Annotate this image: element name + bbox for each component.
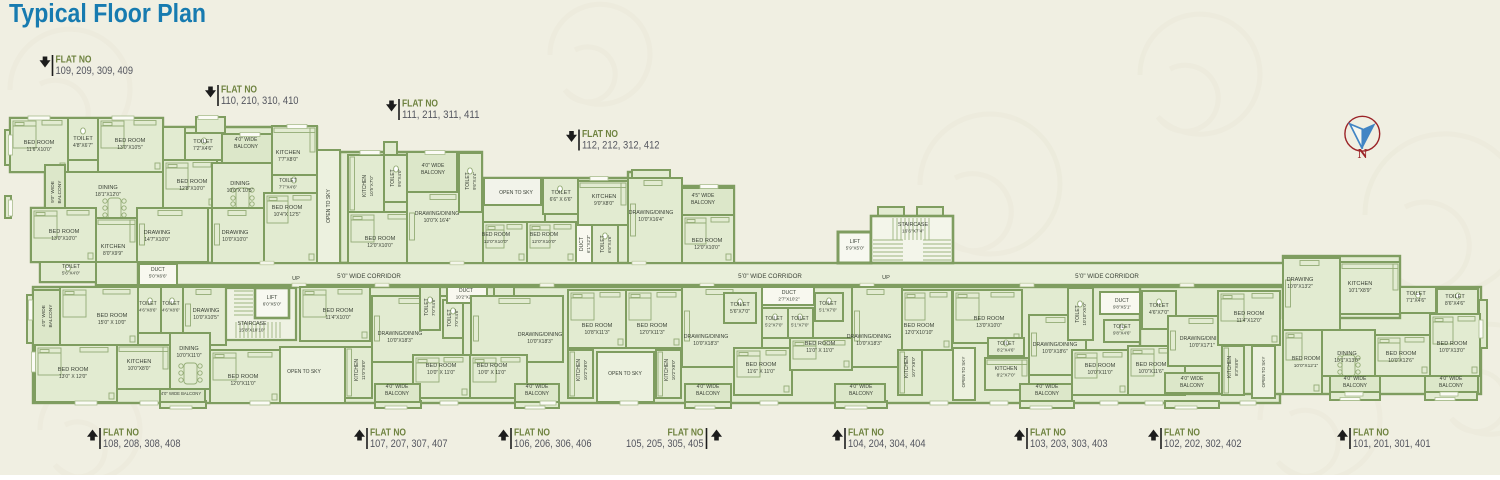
svg-text:107, 207, 307, 407: 107, 207, 307, 407 [370, 438, 448, 450]
svg-text:9'8"X5'1": 9'8"X5'1" [1113, 305, 1131, 310]
svg-text:DRAWING/DINING: DRAWING/DINING [847, 334, 891, 340]
svg-text:TOILET: TOILET [390, 169, 396, 186]
svg-text:4'0" WIDE: 4'0" WIDE [1181, 376, 1204, 382]
svg-text:KITCHEN: KITCHEN [354, 359, 360, 381]
svg-text:TOILET: TOILET [139, 301, 156, 307]
svg-text:4'6"X8'6": 4'6"X8'6" [139, 308, 157, 313]
svg-text:BED ROOM: BED ROOM [1234, 311, 1265, 317]
svg-text:DUCT: DUCT [1115, 298, 1129, 304]
svg-text:BED ROOM: BED ROOM [692, 238, 723, 244]
svg-text:10'0"X18'6": 10'0"X18'6" [1042, 349, 1068, 355]
svg-text:11'4"X12'0": 11'4"X12'0" [1236, 318, 1261, 324]
svg-text:BALCONY: BALCONY [525, 391, 550, 397]
svg-text:10'1"X8'9": 10'1"X8'9" [1349, 288, 1372, 294]
svg-text:DRAWING: DRAWING [222, 230, 249, 236]
svg-text:5’0" WIDE CORRIDOR: 5’0" WIDE CORRIDOR [738, 273, 802, 280]
svg-text:10'0"X18'3": 10'0"X18'3" [856, 341, 882, 347]
svg-text:BED ROOM: BED ROOM [24, 140, 55, 146]
svg-text:BED ROOM: BED ROOM [426, 363, 457, 369]
svg-text:BED ROOM: BED ROOM [49, 229, 80, 235]
svg-text:OPEN TO SKY: OPEN TO SKY [326, 188, 332, 222]
svg-text:BALCONY: BALCONY [421, 170, 446, 176]
svg-text:BED ROOM: BED ROOM [1085, 363, 1116, 369]
svg-text:BED ROOM: BED ROOM [323, 308, 354, 314]
svg-text:9'8"X4'6": 9'8"X4'6" [1113, 331, 1131, 336]
svg-text:7'2"X4'6": 7'2"X4'6" [193, 146, 213, 152]
svg-text:13'0"X10'5": 13'0"X10'5" [117, 145, 143, 151]
svg-text:BED ROOM: BED ROOM [1437, 341, 1468, 347]
svg-text:16’6"X7’4": 16’6"X7’4" [902, 229, 924, 235]
svg-text:TOILET: TOILET [73, 136, 93, 142]
svg-text:10'0"X12'1": 10'0"X12'1" [1294, 363, 1319, 369]
svg-text:TOILET: TOILET [1113, 324, 1130, 330]
svg-text:KITCHEN: KITCHEN [1227, 356, 1233, 378]
svg-text:106, 206, 306, 406: 106, 206, 306, 406 [514, 438, 592, 450]
svg-text:4'5" WIDE: 4'5" WIDE [692, 193, 715, 199]
svg-text:TOILET: TOILET [1406, 291, 1426, 297]
svg-text:10'0"X11'0": 10'0"X11'0" [1087, 370, 1112, 376]
svg-text:BALCONY: BALCONY [57, 180, 63, 204]
svg-text:STAIRCASE: STAIRCASE [237, 321, 267, 327]
svg-text:10'5"X7'0": 10'5"X7'0" [369, 175, 374, 196]
svg-text:4'8"X6'7": 4'8"X6'7" [73, 143, 93, 149]
svg-text:KITCHEN: KITCHEN [995, 366, 1018, 372]
svg-text:TOILET: TOILET [62, 264, 81, 270]
svg-text:4'6"X7'0": 4'6"X7'0" [1149, 310, 1169, 316]
svg-text:10'0"X8'0": 10'0"X8'0" [128, 366, 151, 372]
svg-text:7'7"X8'0": 7'7"X8'0" [278, 157, 298, 163]
svg-text:KITCHEN: KITCHEN [362, 175, 368, 197]
svg-text:4'0" WIDE: 4'0" WIDE [235, 137, 258, 143]
svg-text:BED ROOM: BED ROOM [115, 138, 146, 144]
svg-text:10'0"X18'3": 10'0"X18'3" [693, 341, 719, 347]
svg-text:TOILET: TOILET [1445, 294, 1465, 300]
svg-text:OPEN TO SKY: OPEN TO SKY [1261, 357, 1266, 388]
svg-text:BED ROOM: BED ROOM [974, 316, 1005, 322]
svg-text:105, 205, 305, 405: 105, 205, 305, 405 [626, 438, 704, 450]
svg-text:BED ROOM: BED ROOM [1292, 356, 1320, 362]
svg-text:6'1"X2'3": 6'1"X2'3" [586, 235, 591, 253]
svg-text:10'0"X10'5": 10'0"X10'5" [193, 315, 219, 321]
svg-text:10'0"X13'2": 10'0"X13'2" [1287, 284, 1313, 290]
svg-text:13'0" X 12'0": 13'0" X 12'0" [59, 374, 87, 380]
svg-text:5’0" WIDE CORRIDOR: 5’0" WIDE CORRIDOR [337, 273, 401, 280]
svg-text:TOILET: TOILET [765, 316, 782, 322]
svg-text:11'4"X10'0": 11'4"X10'0" [325, 315, 350, 321]
svg-text:KITCHEN: KITCHEN [127, 359, 152, 365]
svg-text:TOILET: TOILET [424, 298, 430, 315]
svg-text:LIFT: LIFT [267, 295, 278, 301]
svg-text:7'0"X4'6": 7'0"X4'6" [454, 309, 459, 327]
svg-text:102, 202, 302, 402: 102, 202, 302, 402 [1164, 438, 1242, 450]
svg-text:BALCONY: BALCONY [1343, 383, 1368, 389]
svg-text:101, 201, 301, 401: 101, 201, 301, 401 [1353, 438, 1431, 450]
svg-text:4'0" WIDE: 4'0" WIDE [1344, 376, 1367, 382]
svg-text:9'6"X4'4": 9'6"X4'4" [472, 172, 477, 190]
svg-text:OPEN TO SKY: OPEN TO SKY [608, 371, 642, 377]
svg-text:DRAWING: DRAWING [193, 308, 220, 314]
svg-text:7'0"X4'6": 7'0"X4'6" [431, 298, 436, 316]
svg-text:TOILET: TOILET [819, 301, 836, 307]
svg-text:BED ROOM: BED ROOM [904, 323, 935, 329]
svg-text:LIFT: LIFT [850, 239, 861, 245]
svg-text:BALCONY: BALCONY [1180, 383, 1205, 389]
svg-text:5'0"X6'6": 5'0"X6'6" [149, 274, 168, 279]
svg-text:DRAWING: DRAWING [1287, 277, 1314, 283]
svg-text:BED ROOM: BED ROOM [637, 323, 668, 329]
svg-text:10'0"X12'6": 10'0"X12'6" [1388, 358, 1414, 364]
svg-text:BALCONY: BALCONY [385, 391, 410, 397]
svg-text:110, 210, 310, 410: 110, 210, 310, 410 [221, 95, 299, 107]
svg-text:DINING: DINING [98, 185, 118, 191]
svg-text:9'0"X8'0": 9'0"X8'0" [594, 201, 614, 207]
svg-text:5'6"X7'0": 5'6"X7'0" [730, 309, 750, 315]
svg-text:OPEN TO SKY: OPEN TO SKY [499, 190, 533, 196]
svg-text:DRAWING/DINING: DRAWING/DINING [415, 211, 459, 217]
svg-text:DRAWING/DINING: DRAWING/DINING [1033, 342, 1077, 348]
svg-text:5'6"X4'0": 5'6"X4'0" [62, 271, 81, 276]
svg-text:5'1"X7'0": 5'1"X7'0" [819, 308, 837, 313]
svg-text:TOILET: TOILET [600, 235, 606, 252]
svg-text:9'0" WIDE: 9'0" WIDE [50, 181, 56, 203]
svg-text:BED ROOM: BED ROOM [97, 313, 128, 319]
svg-text:104, 204, 304, 404: 104, 204, 304, 404 [848, 438, 926, 450]
svg-text:KITCHEN: KITCHEN [1348, 281, 1373, 287]
svg-text:UP: UP [292, 276, 300, 282]
svg-text:10'1"X13'0": 10'1"X13'0" [1334, 358, 1360, 364]
svg-text:TOILET: TOILET [162, 301, 179, 307]
svg-text:14'7"X10'0": 14'7"X10'0" [144, 237, 170, 243]
svg-text:8'2"X4'6": 8'2"X4'6" [997, 348, 1015, 353]
svg-text:10'0"X16'4": 10'0"X16'4" [638, 217, 664, 223]
svg-text:4'0" WIDE: 4'0" WIDE [1036, 384, 1059, 390]
svg-text:6’0"X5’0": 6’0"X5’0" [263, 302, 282, 307]
svg-text:10'10"X5'0": 10'10"X5'0" [1082, 302, 1087, 325]
svg-text:UP: UP [882, 275, 890, 281]
svg-text:DINING: DINING [230, 181, 250, 187]
svg-text:6'6"X4'6": 6'6"X4'6" [607, 235, 612, 253]
svg-text:TOILET: TOILET [447, 309, 453, 326]
svg-text:10'0"X11'6": 10'0"X11'6" [1138, 369, 1163, 375]
svg-text:KITCHEN: KITCHEN [592, 194, 617, 200]
svg-text:BALCONY: BALCONY [849, 391, 874, 397]
svg-text:4'6"X8'6": 4'6"X8'6" [162, 308, 180, 313]
svg-text:STAIRCASE: STAIRCASE [898, 222, 929, 228]
svg-text:TOILET: TOILET [279, 178, 296, 184]
svg-text:5’9"X5’0": 5’9"X5’0" [846, 246, 865, 251]
svg-text:4'0" WIDE: 4'0" WIDE [850, 384, 873, 390]
svg-text:13'0"X10'0": 13'0"X10'0" [51, 236, 77, 242]
svg-text:10'7"X8'0": 10'7"X8'0" [911, 356, 916, 377]
svg-text:BALCONY: BALCONY [234, 144, 259, 150]
svg-text:4'0" WIDE: 4'0" WIDE [1440, 376, 1463, 382]
svg-text:10'0"X18'3": 10'0"X18'3" [387, 338, 413, 344]
svg-text:8'2"X7'0": 8'2"X7'0" [997, 373, 1016, 378]
svg-text:11'0" X 11'0": 11'0" X 11'0" [806, 348, 834, 354]
svg-text:12'8"X10'0": 12'8"X10'0" [179, 186, 205, 192]
svg-text:10'2"X8'0": 10'2"X8'0" [671, 359, 676, 380]
svg-text:109, 209, 309, 409: 109, 209, 309, 409 [56, 65, 134, 77]
svg-text:BALCONY: BALCONY [1035, 391, 1060, 397]
svg-text:10'2"X8'0": 10'2"X8'0" [583, 359, 588, 380]
svg-text:BALCONY: BALCONY [1439, 383, 1464, 389]
svg-text:10'0"X10'0": 10'0"X10'0" [222, 237, 248, 243]
svg-text:BALCONY: BALCONY [696, 391, 721, 397]
svg-text:DINING: DINING [1337, 351, 1357, 357]
svg-text:12'0"X10'10": 12'0"X10'10" [905, 330, 933, 336]
svg-text:12'0"X10'0": 12'0"X10'0" [367, 243, 393, 249]
svg-text:15'0" X 10'0": 15'0" X 10'0" [98, 320, 126, 326]
svg-text:BED ROOM: BED ROOM [58, 367, 89, 373]
svg-text:12'0"X10'0": 12'0"X10'0" [484, 239, 509, 245]
svg-text:103, 203, 303, 403: 103, 203, 303, 403 [1030, 438, 1108, 450]
svg-text:OPEN TO SKY: OPEN TO SKY [961, 357, 966, 388]
svg-text:6'6" X 6'6": 6'6" X 6'6" [550, 197, 573, 203]
svg-text:KITCHEN: KITCHEN [101, 244, 126, 250]
svg-text:TOILET: TOILET [193, 139, 213, 145]
svg-text:BALCONY: BALCONY [691, 200, 716, 206]
svg-text:10'0" X 11'0": 10'0" X 11'0" [427, 370, 455, 376]
svg-text:10'8"X11'3": 10'8"X11'3" [584, 330, 609, 336]
svg-text:BED ROOM: BED ROOM [477, 363, 508, 369]
svg-text:DRAWING/DINING: DRAWING/DINING [378, 331, 422, 337]
svg-text:BED ROOM: BED ROOM [177, 179, 208, 185]
svg-text:12'0"X10'0": 12'0"X10'0" [532, 239, 557, 245]
svg-text:4'0" WIDE BALCONY: 4'0" WIDE BALCONY [161, 391, 201, 396]
svg-text:BED ROOM: BED ROOM [228, 374, 259, 380]
svg-text:15’8"X10’10": 15’8"X10’10" [239, 328, 266, 333]
svg-text:8'3"X8'0": 8'3"X8'0" [1234, 358, 1239, 376]
svg-text:TOILET: TOILET [1149, 303, 1169, 309]
svg-text:DUCT: DUCT [782, 290, 797, 296]
svg-text:DINING: DINING [179, 346, 199, 352]
svg-text:BED ROOM: BED ROOM [272, 205, 303, 211]
svg-text:DRAWING/DINING: DRAWING/DINING [684, 334, 728, 340]
svg-text:13'0"X10'0": 13'0"X10'0" [976, 323, 1002, 329]
svg-text:9'6"X4'0": 9'6"X4'0" [397, 169, 402, 187]
svg-text:10'0"X18'3": 10'0"X18'3" [527, 339, 553, 345]
svg-text:DUCT: DUCT [579, 237, 585, 251]
svg-text:BED ROOM: BED ROOM [530, 232, 558, 238]
svg-text:TOILET: TOILET [730, 302, 750, 308]
svg-text:N: N [1358, 146, 1368, 161]
svg-text:8'0"X9'9": 8'0"X9'9" [103, 251, 123, 257]
svg-text:BED ROOM: BED ROOM [582, 323, 613, 329]
svg-text:10'0"X17'1": 10'0"X17'1" [1189, 343, 1215, 349]
svg-text:10'4"X 12'5": 10'4"X 12'5" [274, 212, 301, 218]
svg-text:5'1"X7'0": 5'1"X7'0" [791, 323, 809, 328]
svg-text:DUCT: DUCT [151, 267, 165, 273]
svg-text:DUCT: DUCT [459, 288, 473, 294]
svg-text:12'0"X11'3": 12'0"X11'3" [639, 330, 664, 336]
svg-text:BALCONY: BALCONY [48, 304, 54, 328]
svg-text:2'7"X10'2": 2'7"X10'2" [778, 297, 800, 302]
svg-text:8'6"X4'6": 8'6"X4'6" [1445, 301, 1465, 307]
svg-text:BED ROOM: BED ROOM [365, 236, 396, 242]
svg-text:111, 211, 311, 411: 111, 211, 311, 411 [402, 109, 480, 121]
svg-text:10'0"X 16'4": 10'0"X 16'4" [424, 218, 451, 224]
svg-text:4'0" WIDE: 4'0" WIDE [422, 163, 445, 169]
svg-text:10'0" X 11'0": 10'0" X 11'0" [478, 370, 506, 376]
svg-text:OPEN TO SKY: OPEN TO SKY [287, 369, 321, 375]
svg-text:10'0"X13'0": 10'0"X13'0" [1439, 348, 1465, 354]
svg-text:4'0" WIDE: 4'0" WIDE [41, 305, 47, 327]
svg-text:11'6" X 11'0": 11'6" X 11'0" [747, 369, 775, 375]
svg-text:12'0"X11'0": 12'0"X11'0" [230, 381, 255, 387]
svg-text:10'0"X 10'5": 10'0"X 10'5" [227, 188, 254, 194]
svg-text:11'0"X8'0": 11'0"X8'0" [361, 360, 366, 380]
svg-text:KITCHEN: KITCHEN [664, 359, 670, 381]
svg-text:KITCHEN: KITCHEN [276, 150, 301, 156]
svg-text:11'6"X10'0": 11'6"X10'0" [26, 147, 51, 153]
svg-text:DRAWING: DRAWING [144, 230, 171, 236]
svg-text:KITCHEN: KITCHEN [904, 356, 910, 378]
svg-text:12'0"X10'0": 12'0"X10'0" [694, 245, 720, 251]
svg-text:TOILET: TOILET [1075, 305, 1081, 322]
svg-text:7'1"X4'6": 7'1"X4'6" [1406, 298, 1426, 304]
svg-text:TOILET: TOILET [997, 341, 1014, 347]
svg-text:Typical Floor Plan: Typical Floor Plan [9, 0, 206, 28]
svg-text:5’0" WIDE CORRIDOR: 5’0" WIDE CORRIDOR [1075, 273, 1139, 280]
svg-text:5'2"X7'0": 5'2"X7'0" [765, 323, 783, 328]
svg-text:4'0" WIDE: 4'0" WIDE [526, 384, 549, 390]
svg-text:112, 212, 312, 412: 112, 212, 312, 412 [582, 140, 660, 152]
svg-text:10'0"X11'0": 10'0"X11'0" [176, 353, 201, 359]
svg-text:TOILET: TOILET [465, 172, 471, 189]
svg-text:BED ROOM: BED ROOM [1386, 351, 1417, 357]
svg-text:108, 208, 308, 408: 108, 208, 308, 408 [103, 438, 181, 450]
svg-text:TOILET: TOILET [791, 316, 808, 322]
svg-text:7'7"X4'6": 7'7"X4'6" [279, 185, 298, 190]
svg-text:KITCHEN: KITCHEN [576, 359, 582, 381]
svg-text:BED ROOM: BED ROOM [746, 362, 777, 368]
svg-text:BED ROOM: BED ROOM [1136, 362, 1167, 368]
svg-text:4'0" WIDE: 4'0" WIDE [386, 384, 409, 390]
svg-text:DRAWING/DINING: DRAWING/DINING [518, 332, 562, 338]
svg-text:TOILET: TOILET [551, 190, 571, 196]
svg-text:BED ROOM: BED ROOM [482, 232, 510, 238]
svg-text:18'1"X12'0": 18'1"X12'0" [95, 192, 121, 198]
svg-text:4'0" WIDE: 4'0" WIDE [697, 384, 720, 390]
svg-text:DRAWING/DINING: DRAWING/DINING [629, 210, 673, 216]
svg-text:BED ROOM: BED ROOM [805, 341, 836, 347]
